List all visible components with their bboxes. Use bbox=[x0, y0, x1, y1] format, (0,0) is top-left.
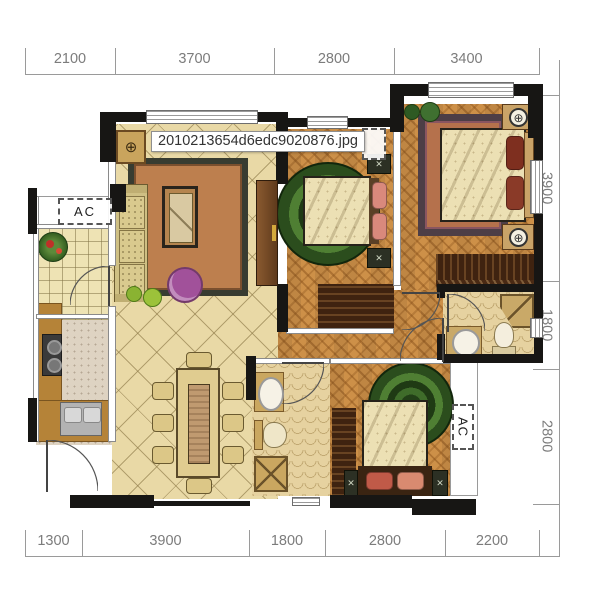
entry-door-arc bbox=[46, 440, 98, 492]
bay-window bbox=[428, 82, 514, 98]
flower-dot bbox=[56, 248, 62, 254]
wall-segment bbox=[412, 499, 476, 515]
wall-segment bbox=[330, 495, 412, 508]
wall-segment bbox=[246, 356, 256, 400]
bathroom-1-door-arc bbox=[282, 362, 324, 404]
coffee-table-glass bbox=[169, 193, 193, 243]
lamp-icon: ⊕ bbox=[509, 228, 528, 247]
dim-tick bbox=[533, 504, 560, 505]
wall-segment bbox=[70, 495, 154, 508]
dining-chair bbox=[222, 414, 244, 432]
floor-plan-image: 2100 3700 2800 3400 1300 3900 1800 2800 … bbox=[0, 0, 600, 600]
window bbox=[530, 160, 543, 214]
dim-label: 3400 bbox=[394, 51, 539, 67]
wall-segment bbox=[28, 188, 37, 234]
pillow bbox=[506, 136, 524, 170]
nightstand-motif-icon: ✕ bbox=[347, 478, 355, 489]
dim-label: 2800 bbox=[537, 369, 556, 504]
window bbox=[307, 116, 348, 129]
wall-segment bbox=[36, 314, 112, 319]
toilet bbox=[494, 322, 514, 348]
nightstand-motif-icon: ✕ bbox=[375, 253, 383, 264]
wall-segment bbox=[100, 112, 146, 122]
wall-segment bbox=[534, 136, 543, 160]
dining-chair bbox=[152, 446, 174, 464]
dim-line-top bbox=[25, 74, 540, 75]
bathroom-1-vanity bbox=[254, 372, 284, 412]
bedroom-2-dresser bbox=[318, 284, 394, 330]
vent-window bbox=[292, 497, 320, 506]
window bbox=[530, 318, 543, 338]
master-door-arc bbox=[402, 292, 440, 330]
dim-tick bbox=[539, 48, 540, 75]
wall-segment bbox=[528, 84, 543, 138]
filename-tooltip: 2010213654d6edc9020876.jpg bbox=[151, 131, 365, 152]
ac-label-left: AC bbox=[58, 198, 112, 225]
dim-tick bbox=[539, 530, 540, 557]
wall-segment bbox=[534, 286, 543, 318]
pillow bbox=[372, 213, 387, 240]
living-room-door-leaf bbox=[256, 180, 278, 286]
ac-marker-top bbox=[362, 128, 386, 160]
dim-label: 3700 bbox=[115, 51, 274, 67]
wreath-plant-icon bbox=[38, 232, 68, 262]
nightstand: ⊕ bbox=[502, 224, 534, 250]
dining-chair bbox=[222, 446, 244, 464]
balcony-door-arc bbox=[70, 266, 110, 306]
dining-table bbox=[176, 368, 220, 478]
pillow bbox=[366, 472, 393, 490]
kitchen-sink bbox=[60, 402, 102, 436]
wall-segment bbox=[28, 398, 37, 442]
dim-line-bottom bbox=[25, 556, 559, 557]
nightstand-motif-icon: ✕ bbox=[436, 478, 444, 489]
pillow bbox=[506, 176, 524, 210]
wall-segment bbox=[443, 354, 543, 363]
lamp-icon: ⊕ bbox=[509, 108, 528, 127]
dim-label: 2100 bbox=[25, 51, 115, 67]
wall-segment bbox=[534, 214, 543, 288]
dim-label: 2800 bbox=[274, 51, 394, 67]
nightstand: ✕ bbox=[432, 470, 448, 496]
master-wardrobe bbox=[436, 254, 536, 280]
burner-icon bbox=[47, 340, 62, 355]
dining-chair bbox=[152, 414, 174, 432]
dining-chair bbox=[152, 382, 174, 400]
wall-segment bbox=[443, 284, 535, 292]
flower-dot bbox=[46, 240, 54, 248]
wall-segment bbox=[402, 84, 428, 96]
wall-segment bbox=[154, 501, 250, 506]
pillow bbox=[372, 182, 387, 209]
dining-chair bbox=[222, 382, 244, 400]
dim-label: 1300 bbox=[25, 533, 82, 549]
door-handle bbox=[272, 225, 276, 241]
pillow bbox=[397, 472, 424, 490]
nightstand-motif-icon: ✕ bbox=[375, 159, 383, 170]
shower-tray bbox=[254, 456, 288, 492]
table-runner bbox=[188, 384, 210, 464]
ac-label-right: AC bbox=[452, 404, 474, 450]
plant-icon bbox=[143, 288, 162, 307]
plant-icon bbox=[404, 104, 420, 120]
sink-basin bbox=[452, 329, 480, 357]
wall-segment bbox=[348, 118, 392, 127]
dim-label: 2800 bbox=[325, 533, 445, 549]
window bbox=[146, 110, 258, 124]
wall-segment bbox=[393, 128, 401, 286]
stove bbox=[42, 334, 62, 376]
toilet bbox=[263, 422, 287, 448]
wall-segment bbox=[288, 118, 308, 127]
ottoman bbox=[167, 267, 203, 303]
bathroom-2-door-arc bbox=[447, 294, 485, 332]
dim-line-right bbox=[559, 60, 560, 557]
cabinet-motif-icon: ⊕ bbox=[125, 138, 138, 156]
wall-segment bbox=[286, 328, 394, 334]
bedroom-2-bed bbox=[303, 176, 371, 246]
dining-chair bbox=[186, 352, 212, 368]
dim-label: 2200 bbox=[445, 533, 539, 549]
coffee-table bbox=[162, 186, 198, 248]
burner-icon bbox=[47, 358, 62, 373]
plant-icon bbox=[126, 286, 142, 302]
toilet-tank bbox=[254, 420, 263, 450]
wall-segment bbox=[277, 284, 288, 332]
nightstand: ✕ bbox=[344, 470, 358, 496]
sofa-cushion bbox=[119, 230, 145, 263]
plant-icon bbox=[420, 102, 440, 122]
wall-segment bbox=[110, 184, 126, 212]
dim-label: 1800 bbox=[249, 533, 325, 549]
nightstand: ✕ bbox=[367, 248, 391, 268]
wall-segment bbox=[108, 306, 116, 442]
sink-basin bbox=[83, 407, 101, 423]
sink-basin bbox=[258, 377, 284, 411]
entry-cabinet: ⊕ bbox=[116, 130, 146, 164]
sink-basin bbox=[64, 407, 82, 423]
dim-label: 3900 bbox=[82, 533, 249, 549]
dining-chair bbox=[186, 478, 212, 494]
